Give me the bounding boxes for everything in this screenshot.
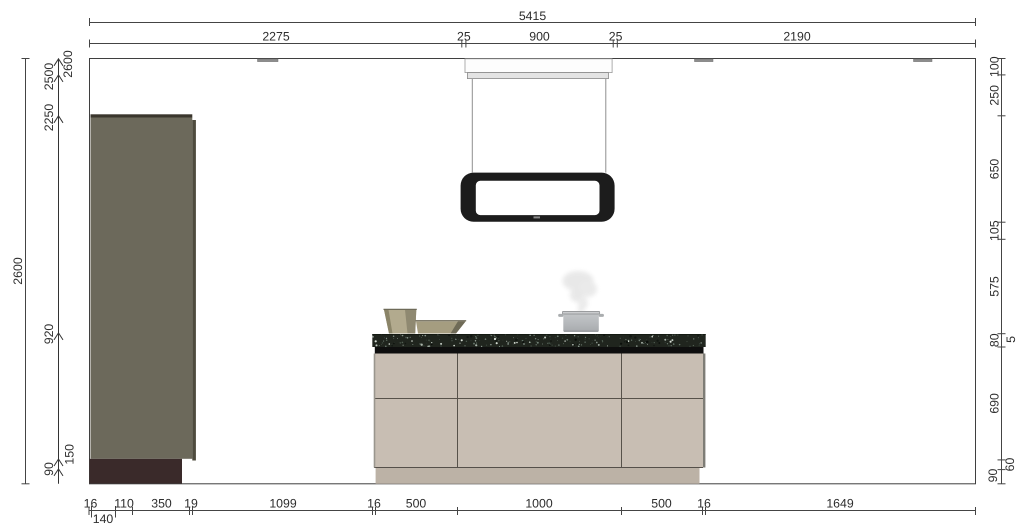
svg-text:2600: 2600 bbox=[61, 50, 75, 78]
svg-text:60: 60 bbox=[1003, 458, 1017, 472]
svg-text:650: 650 bbox=[987, 159, 1001, 180]
svg-text:25: 25 bbox=[457, 29, 471, 43]
svg-text:500: 500 bbox=[651, 496, 672, 510]
svg-text:575: 575 bbox=[987, 276, 1001, 297]
svg-text:110: 110 bbox=[114, 496, 134, 510]
svg-text:16: 16 bbox=[367, 496, 381, 510]
svg-text:90: 90 bbox=[986, 469, 1000, 483]
svg-text:2500: 2500 bbox=[42, 63, 56, 91]
svg-text:350: 350 bbox=[151, 496, 172, 510]
svg-text:5: 5 bbox=[1004, 336, 1018, 343]
svg-text:19: 19 bbox=[184, 496, 198, 510]
svg-text:90: 90 bbox=[42, 462, 56, 476]
svg-text:2250: 2250 bbox=[42, 104, 56, 132]
svg-text:2190: 2190 bbox=[783, 29, 811, 43]
svg-text:900: 900 bbox=[529, 29, 550, 43]
svg-text:250: 250 bbox=[987, 85, 1001, 106]
svg-text:80: 80 bbox=[987, 333, 1001, 347]
svg-text:690: 690 bbox=[987, 393, 1001, 414]
svg-text:105: 105 bbox=[987, 220, 1001, 241]
svg-text:16: 16 bbox=[84, 496, 98, 510]
svg-text:100: 100 bbox=[987, 56, 1001, 77]
svg-text:1000: 1000 bbox=[525, 496, 553, 510]
svg-text:2275: 2275 bbox=[262, 29, 290, 43]
svg-text:140: 140 bbox=[93, 512, 114, 526]
svg-text:25: 25 bbox=[609, 29, 623, 43]
svg-text:150: 150 bbox=[63, 444, 77, 465]
svg-text:2600: 2600 bbox=[11, 257, 25, 285]
svg-text:1649: 1649 bbox=[826, 496, 854, 510]
svg-text:500: 500 bbox=[406, 496, 427, 510]
svg-text:1099: 1099 bbox=[269, 496, 297, 510]
svg-text:5415: 5415 bbox=[519, 9, 547, 23]
svg-text:16: 16 bbox=[697, 496, 711, 510]
svg-text:920: 920 bbox=[42, 324, 56, 345]
